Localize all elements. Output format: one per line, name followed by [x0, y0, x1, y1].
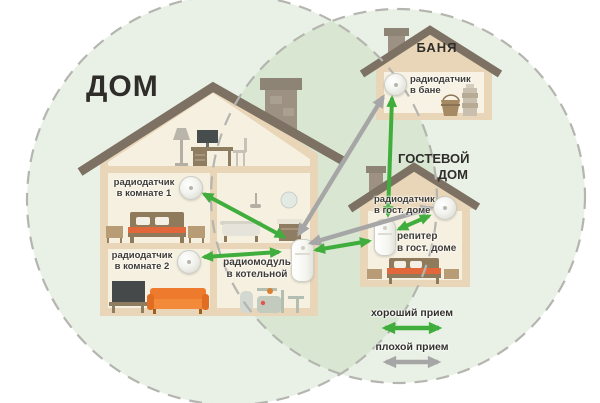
label-sensor-guesthouse: радиодатчик в гост. доме	[374, 194, 446, 217]
label-sensor-bathhouse: радиодатчик в бане	[410, 74, 480, 97]
label-sensor-room2: радиодатчик в комнате 2	[105, 250, 179, 273]
legend-good-label: хороший прием	[360, 307, 464, 320]
label-repeater-guesthouse: репитер в гост. доме	[397, 231, 463, 255]
arrow-bad-module-bathhouse	[299, 97, 383, 234]
label-sensor-room1: радиодатчик в комнате 1	[107, 177, 181, 200]
arrow-good-module-room1	[204, 194, 284, 237]
bathhouse-title: БАНЯ	[408, 40, 466, 55]
label-radio-module: радиомодуль в котельной	[219, 257, 295, 281]
legend-bad-label: плохой прием	[360, 341, 464, 354]
arrow-good-module-repeater	[316, 241, 369, 250]
signal-arrows-layer	[0, 0, 600, 403]
radio-coverage-diagram: ДОМ БАНЯ ГОСТЕВОЙ ДОМ радиодатчик в комн…	[0, 0, 600, 403]
main-house-title: ДОМ	[86, 70, 159, 104]
guest-house-title: ГОСТЕВОЙ ДОМ	[398, 151, 468, 182]
